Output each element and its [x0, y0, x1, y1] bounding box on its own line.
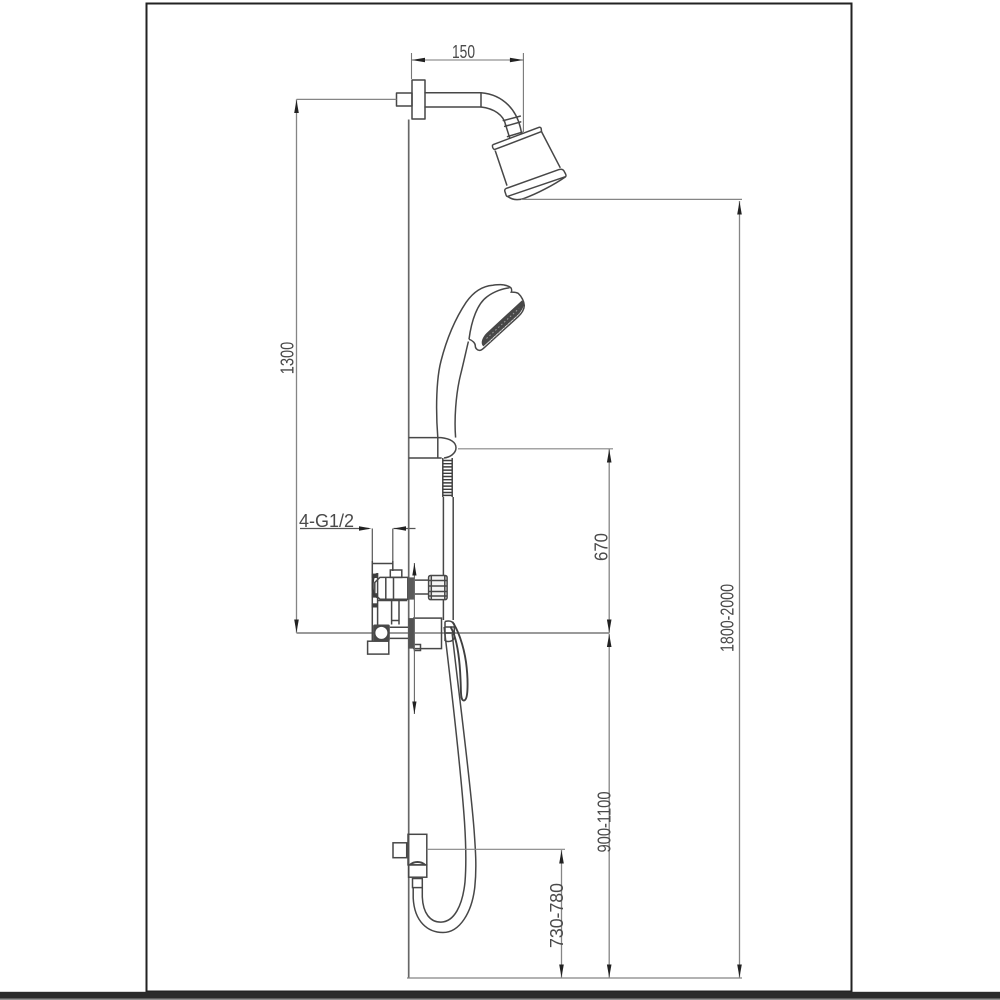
svg-text:900-1100: 900-1100 — [595, 792, 615, 853]
svg-text:1800-2000: 1800-2000 — [718, 584, 738, 652]
svg-text:1300: 1300 — [278, 342, 298, 375]
svg-text:150: 150 — [452, 42, 475, 62]
svg-text:670: 670 — [592, 533, 612, 561]
svg-text:730-780: 730-780 — [547, 883, 567, 948]
